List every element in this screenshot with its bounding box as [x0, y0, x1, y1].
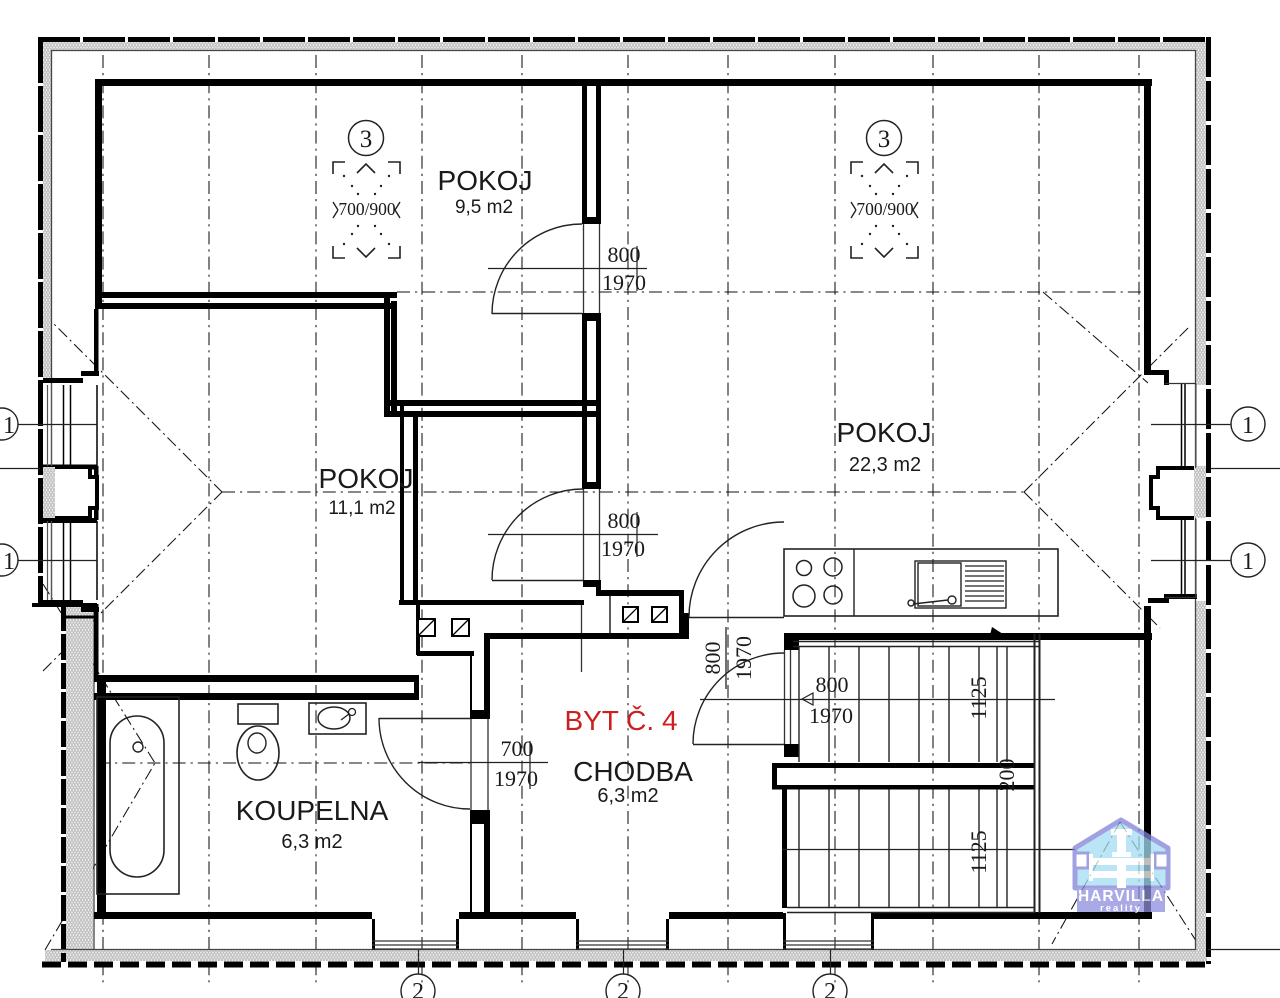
svg-text:POKOJ: POKOJ: [837, 417, 932, 448]
svg-text:1970: 1970: [602, 270, 646, 295]
svg-text:1: 1: [3, 549, 15, 575]
svg-text:11,1 m2: 11,1 m2: [328, 498, 395, 519]
svg-text:1: 1: [3, 413, 15, 439]
svg-text:800: 800: [700, 642, 725, 675]
svg-text:6,3 m2: 6,3 m2: [597, 785, 658, 807]
svg-text:3: 3: [878, 126, 891, 153]
svg-text:1125: 1125: [966, 830, 991, 873]
svg-text:800: 800: [608, 242, 641, 267]
svg-text:1970: 1970: [731, 636, 756, 680]
svg-text:1970: 1970: [601, 536, 645, 561]
svg-text:1970: 1970: [494, 766, 538, 791]
svg-text:2: 2: [412, 979, 424, 998]
svg-text:1: 1: [1242, 549, 1254, 575]
svg-text:KOUPELNA: KOUPELNA: [236, 795, 389, 826]
svg-text:1: 1: [1242, 413, 1254, 439]
svg-text:POKOJ: POKOJ: [438, 165, 533, 196]
svg-text:6,3 m2: 6,3 m2: [281, 831, 342, 853]
svg-text:2: 2: [824, 979, 836, 998]
svg-text:800: 800: [608, 508, 641, 533]
svg-text:BYT Č. 4: BYT Č. 4: [564, 705, 677, 736]
svg-text:3: 3: [360, 126, 373, 153]
svg-text:200: 200: [994, 759, 1019, 792]
svg-text:22,3 m2: 22,3 m2: [849, 454, 921, 476]
svg-text:700/900: 700/900: [338, 199, 396, 219]
svg-text:700: 700: [501, 736, 534, 761]
svg-text:CHODBA: CHODBA: [573, 756, 693, 787]
svg-text:1970: 1970: [809, 703, 853, 728]
svg-text:POKOJ: POKOJ: [319, 463, 414, 494]
svg-text:800: 800: [816, 672, 849, 697]
svg-text:9,5 m2: 9,5 m2: [455, 197, 513, 218]
svg-text:reality: reality: [1100, 903, 1142, 914]
svg-text:1125: 1125: [966, 676, 991, 719]
svg-text:2: 2: [617, 979, 629, 998]
svg-text:700/900: 700/900: [856, 199, 914, 219]
